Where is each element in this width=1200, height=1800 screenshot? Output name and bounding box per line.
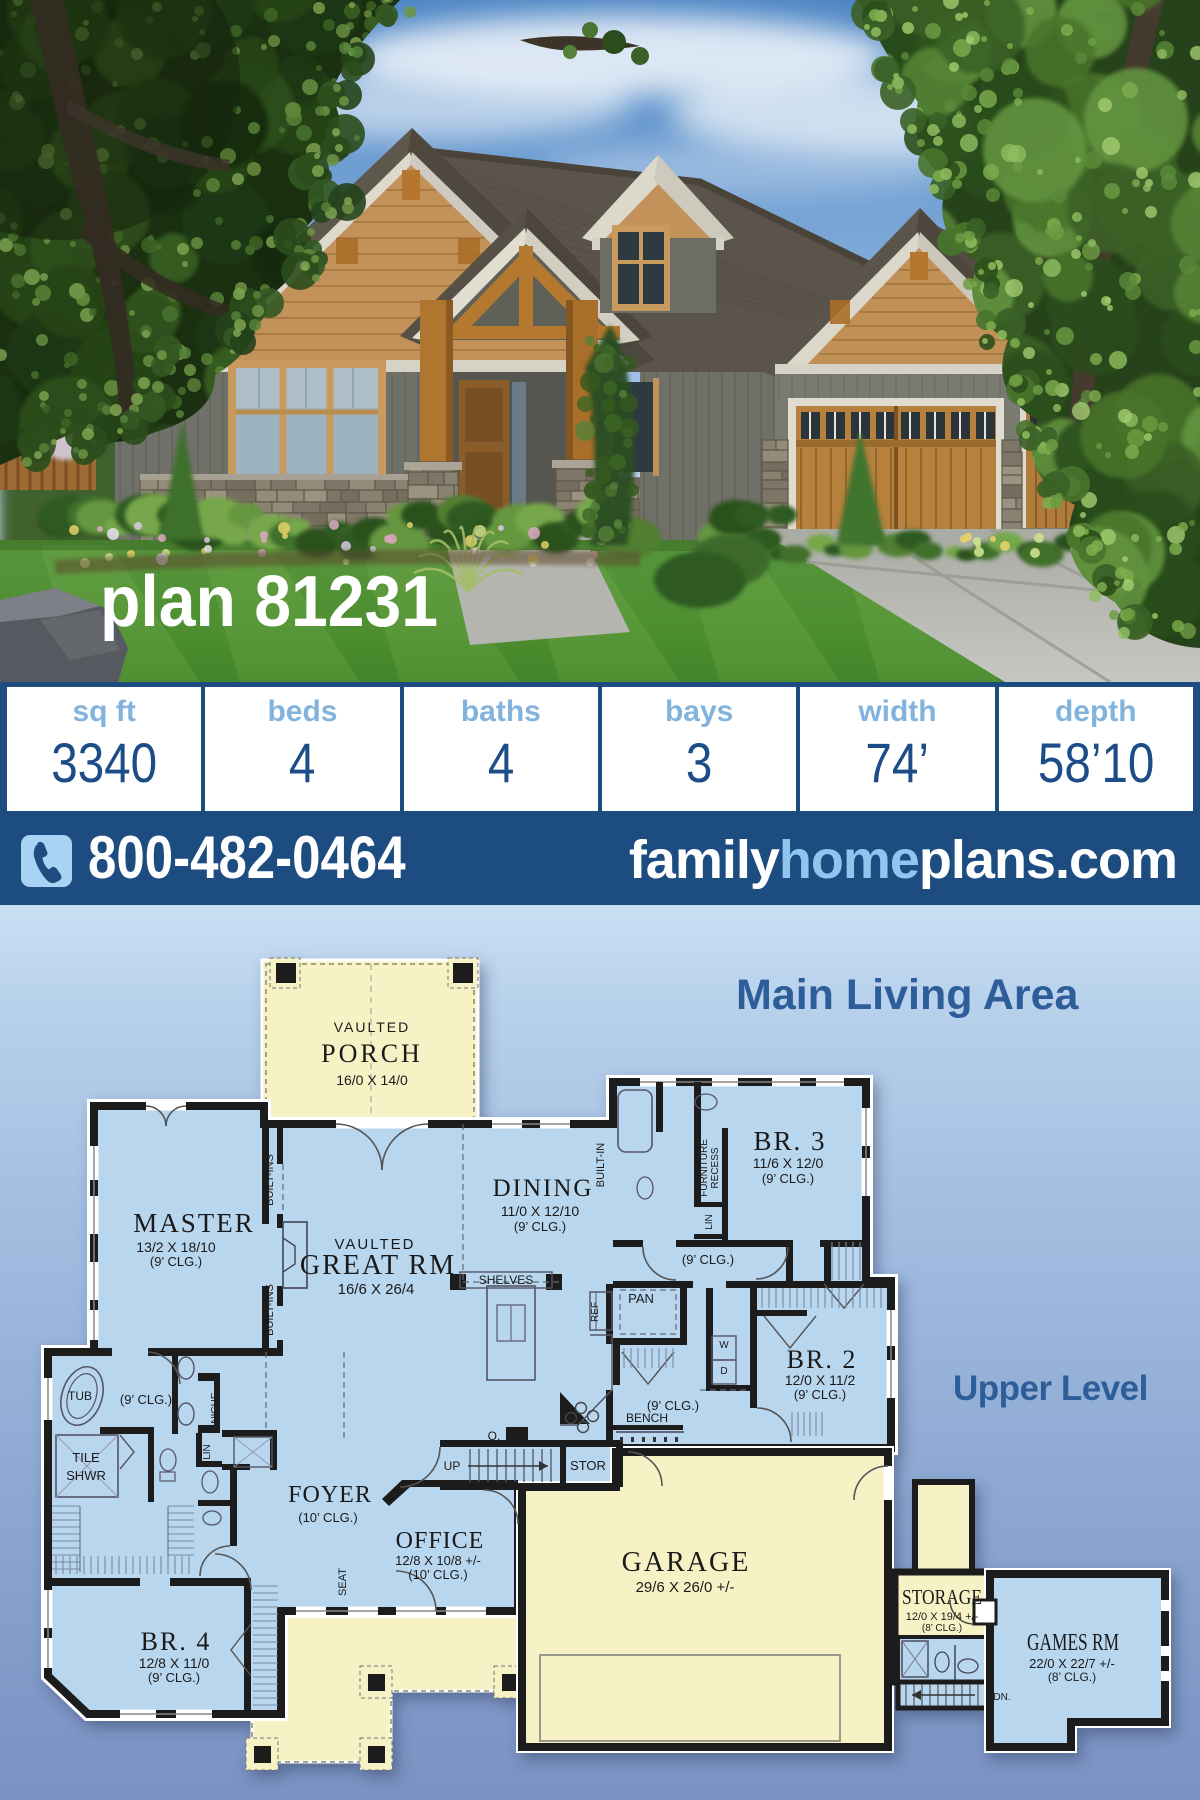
svg-text:W: W xyxy=(719,1340,729,1351)
svg-text:12/0 X 11/2: 12/0 X 11/2 xyxy=(785,1372,856,1388)
svg-text:(8’ CLG.): (8’ CLG.) xyxy=(922,1623,962,1634)
svg-text:PORCH: PORCH xyxy=(321,1039,423,1068)
svg-text:12/0 X 19/4 +/-: 12/0 X 19/4 +/- xyxy=(906,1611,979,1623)
svg-text:(9’ CLG.): (9’ CLG.) xyxy=(762,1171,814,1186)
svg-text:FOYER: FOYER xyxy=(288,1482,372,1508)
svg-text:BENCH: BENCH xyxy=(626,1411,668,1425)
svg-text:VAULTED: VAULTED xyxy=(334,1019,411,1035)
svg-text:UP: UP xyxy=(444,1459,461,1473)
svg-text:(9’ CLG.): (9’ CLG.) xyxy=(120,1392,172,1407)
svg-text:LIN: LIN xyxy=(704,1214,715,1230)
svg-text:REF: REF xyxy=(590,1302,601,1322)
svg-text:22/0 X 22/7 +/-: 22/0 X 22/7 +/- xyxy=(1029,1656,1115,1671)
svg-text:GARAGE: GARAGE xyxy=(622,1547,751,1578)
svg-text:(9’ CLG.): (9’ CLG.) xyxy=(794,1387,846,1402)
svg-text:NICHE: NICHE xyxy=(210,1392,221,1423)
svg-text:(9’ CLG.): (9’ CLG.) xyxy=(150,1254,202,1269)
svg-text:(10’ CLG.): (10’ CLG.) xyxy=(298,1510,357,1525)
svg-text:MASTER: MASTER xyxy=(133,1208,255,1238)
svg-text:O.: O. xyxy=(488,1429,501,1443)
svg-text:BR. 3: BR. 3 xyxy=(753,1126,826,1156)
svg-text:16/0 X 14/0: 16/0 X 14/0 xyxy=(336,1072,408,1088)
svg-text:DN.: DN. xyxy=(993,1692,1010,1703)
svg-text:RECESS: RECESS xyxy=(710,1147,721,1188)
svg-text:BR. 4: BR. 4 xyxy=(141,1627,212,1656)
svg-text:TUB: TUB xyxy=(68,1389,92,1403)
svg-text:STORAGE: STORAGE xyxy=(902,1585,982,1609)
svg-text:BUILT-INS: BUILT-INS xyxy=(264,1154,276,1206)
svg-text:SEAT: SEAT xyxy=(337,1568,349,1596)
svg-text:GAMES RM: GAMES RM xyxy=(1027,1630,1119,1656)
svg-text:SHWR: SHWR xyxy=(66,1468,106,1483)
svg-text:SHELVES: SHELVES xyxy=(479,1273,533,1287)
svg-text:DINING: DINING xyxy=(493,1175,594,1202)
svg-text:TILE: TILE xyxy=(72,1450,100,1465)
svg-text:11/0 X 12/10: 11/0 X 12/10 xyxy=(501,1203,580,1219)
svg-text:12/8 X 10/8 +/-: 12/8 X 10/8 +/- xyxy=(395,1553,481,1568)
svg-text:(9’ CLG.): (9’ CLG.) xyxy=(514,1219,566,1234)
svg-text:PAN: PAN xyxy=(628,1291,654,1306)
svg-text:FURNITURE: FURNITURE xyxy=(699,1139,710,1197)
svg-text:16/6 X 26/4: 16/6 X 26/4 xyxy=(338,1281,415,1298)
svg-text:(9’ CLG.): (9’ CLG.) xyxy=(682,1252,734,1267)
svg-text:12/8 X 11/0: 12/8 X 11/0 xyxy=(139,1655,210,1671)
svg-text:STOR: STOR xyxy=(570,1458,606,1473)
svg-text:13/2 X 18/10: 13/2 X 18/10 xyxy=(136,1239,216,1255)
svg-text:BUILT-INS: BUILT-INS xyxy=(264,1284,276,1336)
svg-text:D: D xyxy=(720,1366,727,1377)
svg-text:11/6 X 12/0: 11/6 X 12/0 xyxy=(753,1155,824,1171)
svg-text:(10’ CLG.): (10’ CLG.) xyxy=(408,1567,467,1582)
svg-text:LIN: LIN xyxy=(202,1444,213,1460)
svg-text:(9’ CLG.): (9’ CLG.) xyxy=(148,1670,200,1685)
svg-text:GREAT RM: GREAT RM xyxy=(300,1250,456,1281)
svg-text:(8’ CLG.): (8’ CLG.) xyxy=(1048,1670,1096,1684)
svg-text:plan 81231: plan 81231 xyxy=(100,562,438,642)
svg-text:OFFICE: OFFICE xyxy=(396,1528,485,1554)
svg-text:29/6 X 26/0 +/-: 29/6 X 26/0 +/- xyxy=(636,1579,735,1596)
svg-text:BUILT-IN: BUILT-IN xyxy=(595,1143,607,1187)
svg-text:BR. 2: BR. 2 xyxy=(787,1345,858,1374)
